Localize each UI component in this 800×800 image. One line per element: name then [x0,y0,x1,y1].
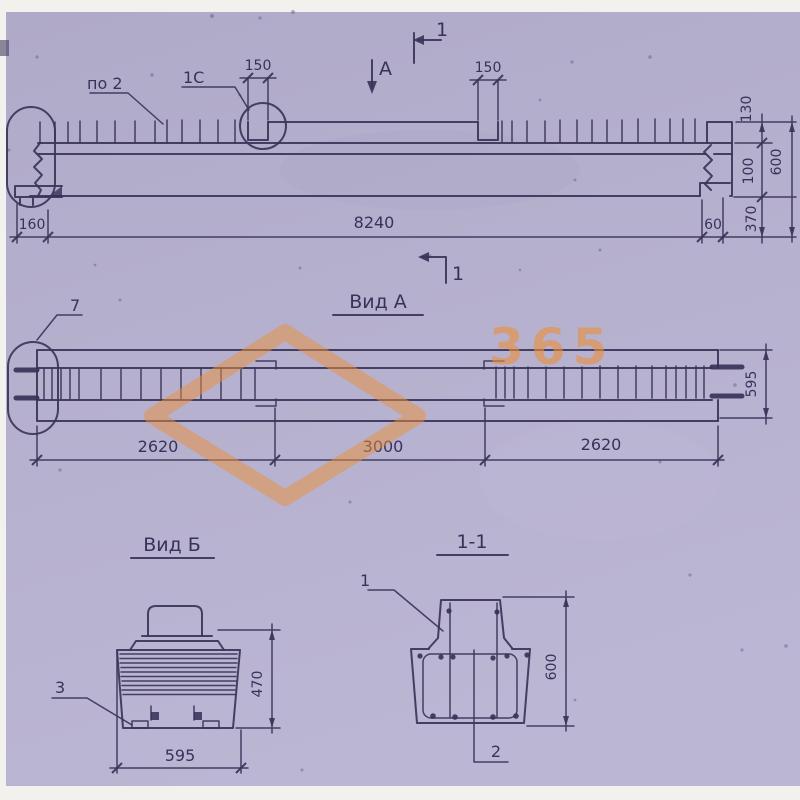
dim-60: 60 [704,217,722,233]
view-a-arrow-label: А [379,58,392,80]
dim-2620-right: 2620 [581,435,622,454]
dim-600-elevation: 600 [769,149,785,176]
dim-470: 470 [250,671,266,698]
dim-595-view-b: 595 [165,746,196,765]
watermark-number: 365 [489,318,614,376]
dim-8240: 8240 [354,213,395,232]
view-a-title: Вид А [349,291,407,313]
svg-text:1: 1 [436,19,448,41]
dim-370: 370 [744,206,760,233]
dim-130: 130 [739,96,755,123]
scanned-drawing-page: по 2 1С 150 150 А 1 1 160 8240 60 [0,0,800,800]
dim-160: 160 [19,217,46,233]
section-title: 1-1 [456,531,487,553]
dim-600-section: 600 [544,654,560,681]
dim-595-view-a: 595 [744,371,760,398]
callout-1-label: 1 [360,571,370,590]
dim-2620-left: 2620 [138,437,179,456]
callout-7-label: 7 [70,296,80,315]
callout-3-label: 3 [55,678,65,697]
view-b-title: Вид Б [143,534,201,556]
dim-100: 100 [741,158,757,185]
callout-po2-label: по 2 [87,74,123,93]
callout-2-label: 2 [491,742,501,761]
drawing-canvas: по 2 1С 150 150 А 1 1 160 8240 60 [0,0,800,800]
dim-150-left: 150 [245,58,272,74]
callout-1c-label: 1С [183,68,204,87]
dim-150-right: 150 [475,60,502,76]
svg-text:1: 1 [452,263,464,285]
